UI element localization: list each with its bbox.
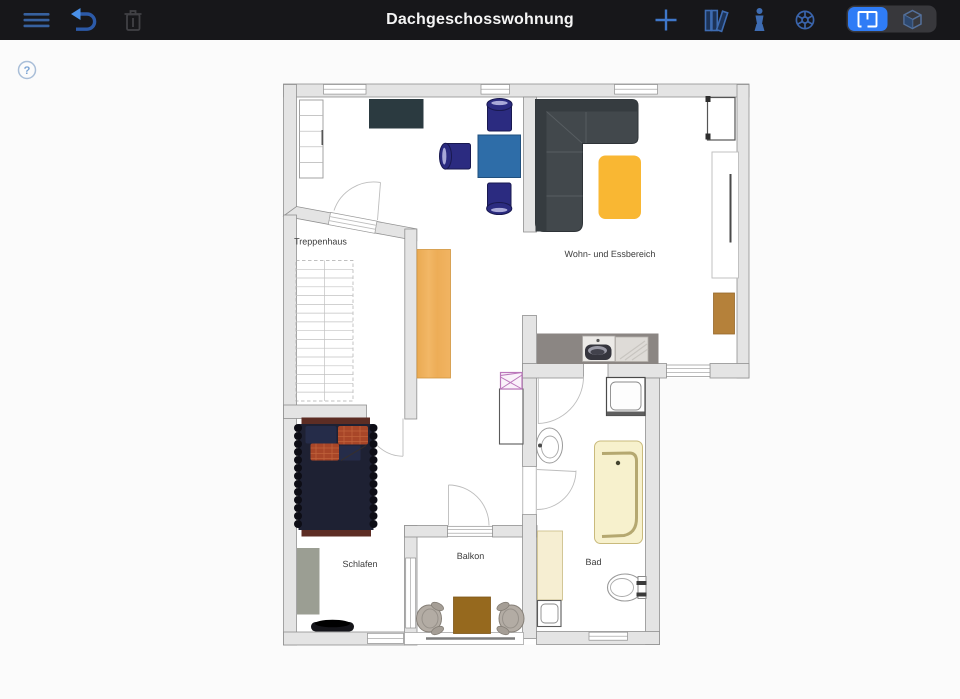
svg-text:Wohn- und Essbereich: Wohn- und Essbereich [565, 249, 656, 259]
svg-text:Treppenhaus: Treppenhaus [294, 237, 347, 247]
svg-text:Balkon: Balkon [457, 551, 485, 561]
svg-text:Bad: Bad [585, 557, 601, 567]
svg-text:?: ? [24, 65, 31, 77]
svg-text:Schlafen: Schlafen [342, 559, 377, 569]
